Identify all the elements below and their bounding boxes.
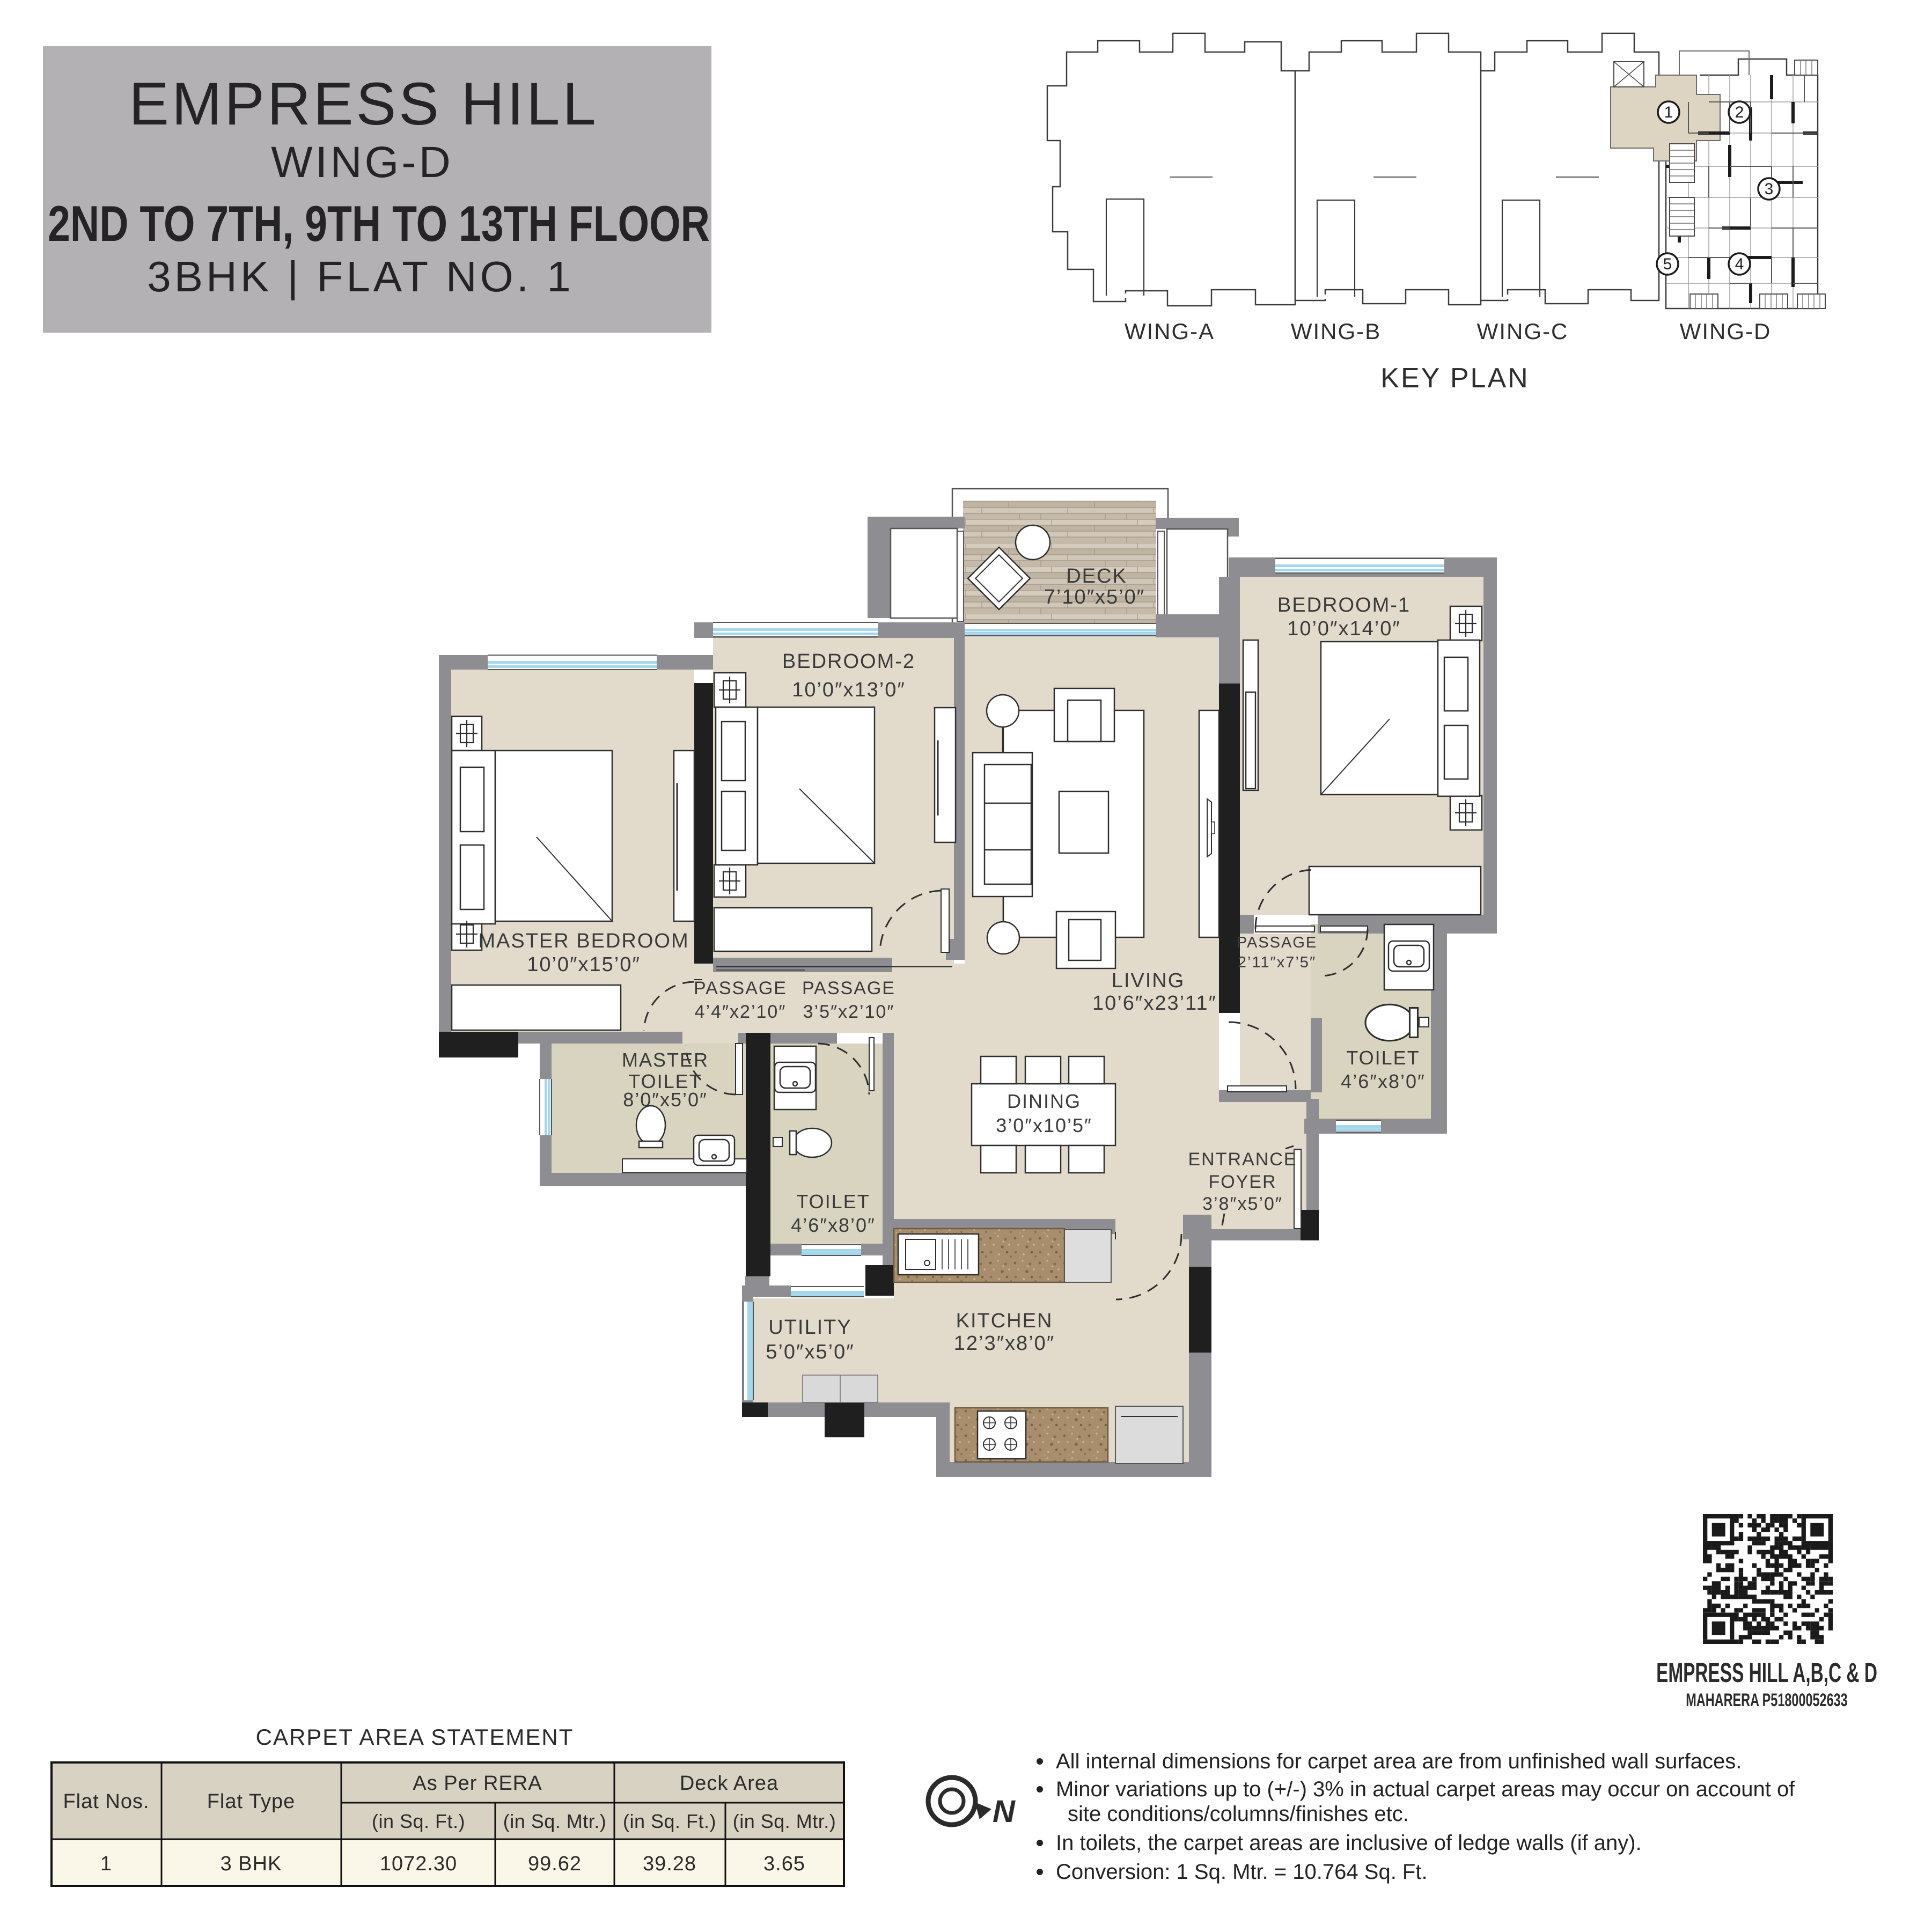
svg-text:5: 5 [1663, 255, 1672, 273]
svg-text:99.62: 99.62 [528, 1853, 582, 1875]
svg-text:EMPRESS HILL: EMPRESS HILL [129, 70, 598, 137]
svg-text:WING-C: WING-C [1477, 319, 1569, 344]
svg-text:MASTER BEDROOM: MASTER BEDROOM [478, 930, 689, 952]
svg-text:8’0″x5’0″: 8’0″x5’0″ [623, 1089, 708, 1111]
svg-text:PASSAGE: PASSAGE [802, 978, 895, 998]
svg-text:Conversion: 1 Sq. Mtr. = 10.76: Conversion: 1 Sq. Mtr. = 10.764 Sq. Ft. [1056, 1860, 1428, 1884]
svg-text:MASTER: MASTER [622, 1049, 709, 1071]
svg-text:DINING: DINING [1007, 1090, 1081, 1112]
svg-text:10’6″x23’11″: 10’6″x23’11″ [1092, 992, 1217, 1015]
svg-text:3.65: 3.65 [763, 1853, 805, 1875]
svg-text:1072.30: 1072.30 [380, 1853, 457, 1875]
svg-text:3’8″x5’0″: 3’8″x5’0″ [1202, 1194, 1283, 1214]
svg-text:ENTRANCE: ENTRANCE [1188, 1149, 1297, 1170]
svg-text:12’3″x8’0″: 12’3″x8’0″ [954, 1332, 1055, 1355]
svg-text:As Per RERA: As Per RERA [413, 1772, 542, 1795]
svg-text:N: N [993, 1794, 1016, 1829]
svg-text:EMPRESS HILL A,B,C & D: EMPRESS HILL A,B,C & D [1656, 1658, 1877, 1688]
svg-text:KEY PLAN: KEY PLAN [1380, 363, 1529, 394]
svg-text:WING-A: WING-A [1125, 319, 1215, 344]
svg-text:4: 4 [1735, 255, 1744, 273]
svg-text:(in Sq. Mtr.): (in Sq. Mtr.) [503, 1810, 607, 1832]
svg-text:7’10″x5’0″: 7’10″x5’0″ [1044, 586, 1145, 608]
svg-text:2: 2 [1735, 104, 1744, 121]
svg-text:4’6″x8’0″: 4’6″x8’0″ [1341, 1070, 1426, 1092]
svg-text:WING-B: WING-B [1291, 319, 1381, 344]
svg-text:DECK: DECK [1066, 565, 1127, 587]
svg-text:4’6″x8’0″: 4’6″x8’0″ [791, 1214, 876, 1236]
svg-text:TOILET: TOILET [796, 1191, 870, 1213]
svg-text:KITCHEN: KITCHEN [956, 1310, 1053, 1332]
svg-text:In toilets, the carpet areas a: In toilets, the carpet areas are inclusi… [1056, 1831, 1642, 1855]
svg-text:Minor variations up to (+/-) 3: Minor variations up to (+/-) 3% in actua… [1056, 1777, 1795, 1801]
svg-text:PASSAGE: PASSAGE [1237, 934, 1317, 951]
svg-text:4’4″x2’10″: 4’4″x2’10″ [695, 1002, 787, 1022]
svg-text:2ND TO 7TH, 9TH TO 13TH FLOOR: 2ND TO 7TH, 9TH TO 13TH FLOOR [48, 196, 710, 252]
svg-text:3 BHK: 3 BHK [221, 1853, 282, 1875]
svg-text:Flat Type: Flat Type [207, 1790, 296, 1813]
svg-text:2’11″x7’5″: 2’11″x7’5″ [1238, 954, 1316, 971]
svg-text:LIVING: LIVING [1112, 969, 1185, 992]
svg-text:(in Sq. Mtr.): (in Sq. Mtr.) [733, 1810, 836, 1832]
svg-text:site conditions/columns/finish: site conditions/columns/finishes etc. [1068, 1802, 1409, 1826]
svg-text:3: 3 [1765, 180, 1774, 198]
svg-text:3’0″x10’5″: 3’0″x10’5″ [996, 1114, 1092, 1136]
svg-text:UTILITY: UTILITY [768, 1316, 851, 1339]
svg-text:PASSAGE: PASSAGE [694, 978, 787, 998]
svg-text:FOYER: FOYER [1208, 1172, 1276, 1192]
svg-text:BEDROOM-1: BEDROOM-1 [1277, 594, 1411, 616]
svg-text:39.28: 39.28 [643, 1853, 696, 1875]
svg-text:CARPET AREA STATEMENT: CARPET AREA STATEMENT [256, 1724, 574, 1750]
svg-text:5’0″x5’0″: 5’0″x5’0″ [766, 1341, 854, 1363]
svg-text:WING-D: WING-D [271, 138, 453, 187]
svg-text:1: 1 [1664, 104, 1673, 121]
svg-text:10’0″x15’0″: 10’0″x15’0″ [527, 953, 641, 976]
svg-text:WING-D: WING-D [1680, 319, 1772, 344]
svg-text:BEDROOM-2: BEDROOM-2 [782, 650, 915, 673]
svg-text:3BHK | FLAT NO. 1: 3BHK | FLAT NO. 1 [147, 253, 574, 300]
svg-text:Flat Nos.: Flat Nos. [63, 1790, 149, 1813]
svg-text:1: 1 [100, 1853, 112, 1875]
svg-text:Deck Area: Deck Area [680, 1772, 778, 1795]
svg-text:TOILET: TOILET [1346, 1047, 1420, 1069]
svg-text:(in Sq. Ft.): (in Sq. Ft.) [372, 1810, 465, 1832]
svg-text:MAHARERA P51800052633: MAHARERA P51800052633 [1686, 1691, 1847, 1710]
svg-text:10’0″x13’0″: 10’0″x13’0″ [792, 679, 906, 701]
svg-text:All internal dimensions for ca: All internal dimensions for carpet area … [1056, 1750, 1742, 1773]
svg-text:10’0″x14’0″: 10’0″x14’0″ [1287, 618, 1401, 640]
svg-text:(in Sq. Ft.): (in Sq. Ft.) [623, 1810, 716, 1832]
svg-text:3’5″x2’10″: 3’5″x2’10″ [803, 1002, 895, 1022]
